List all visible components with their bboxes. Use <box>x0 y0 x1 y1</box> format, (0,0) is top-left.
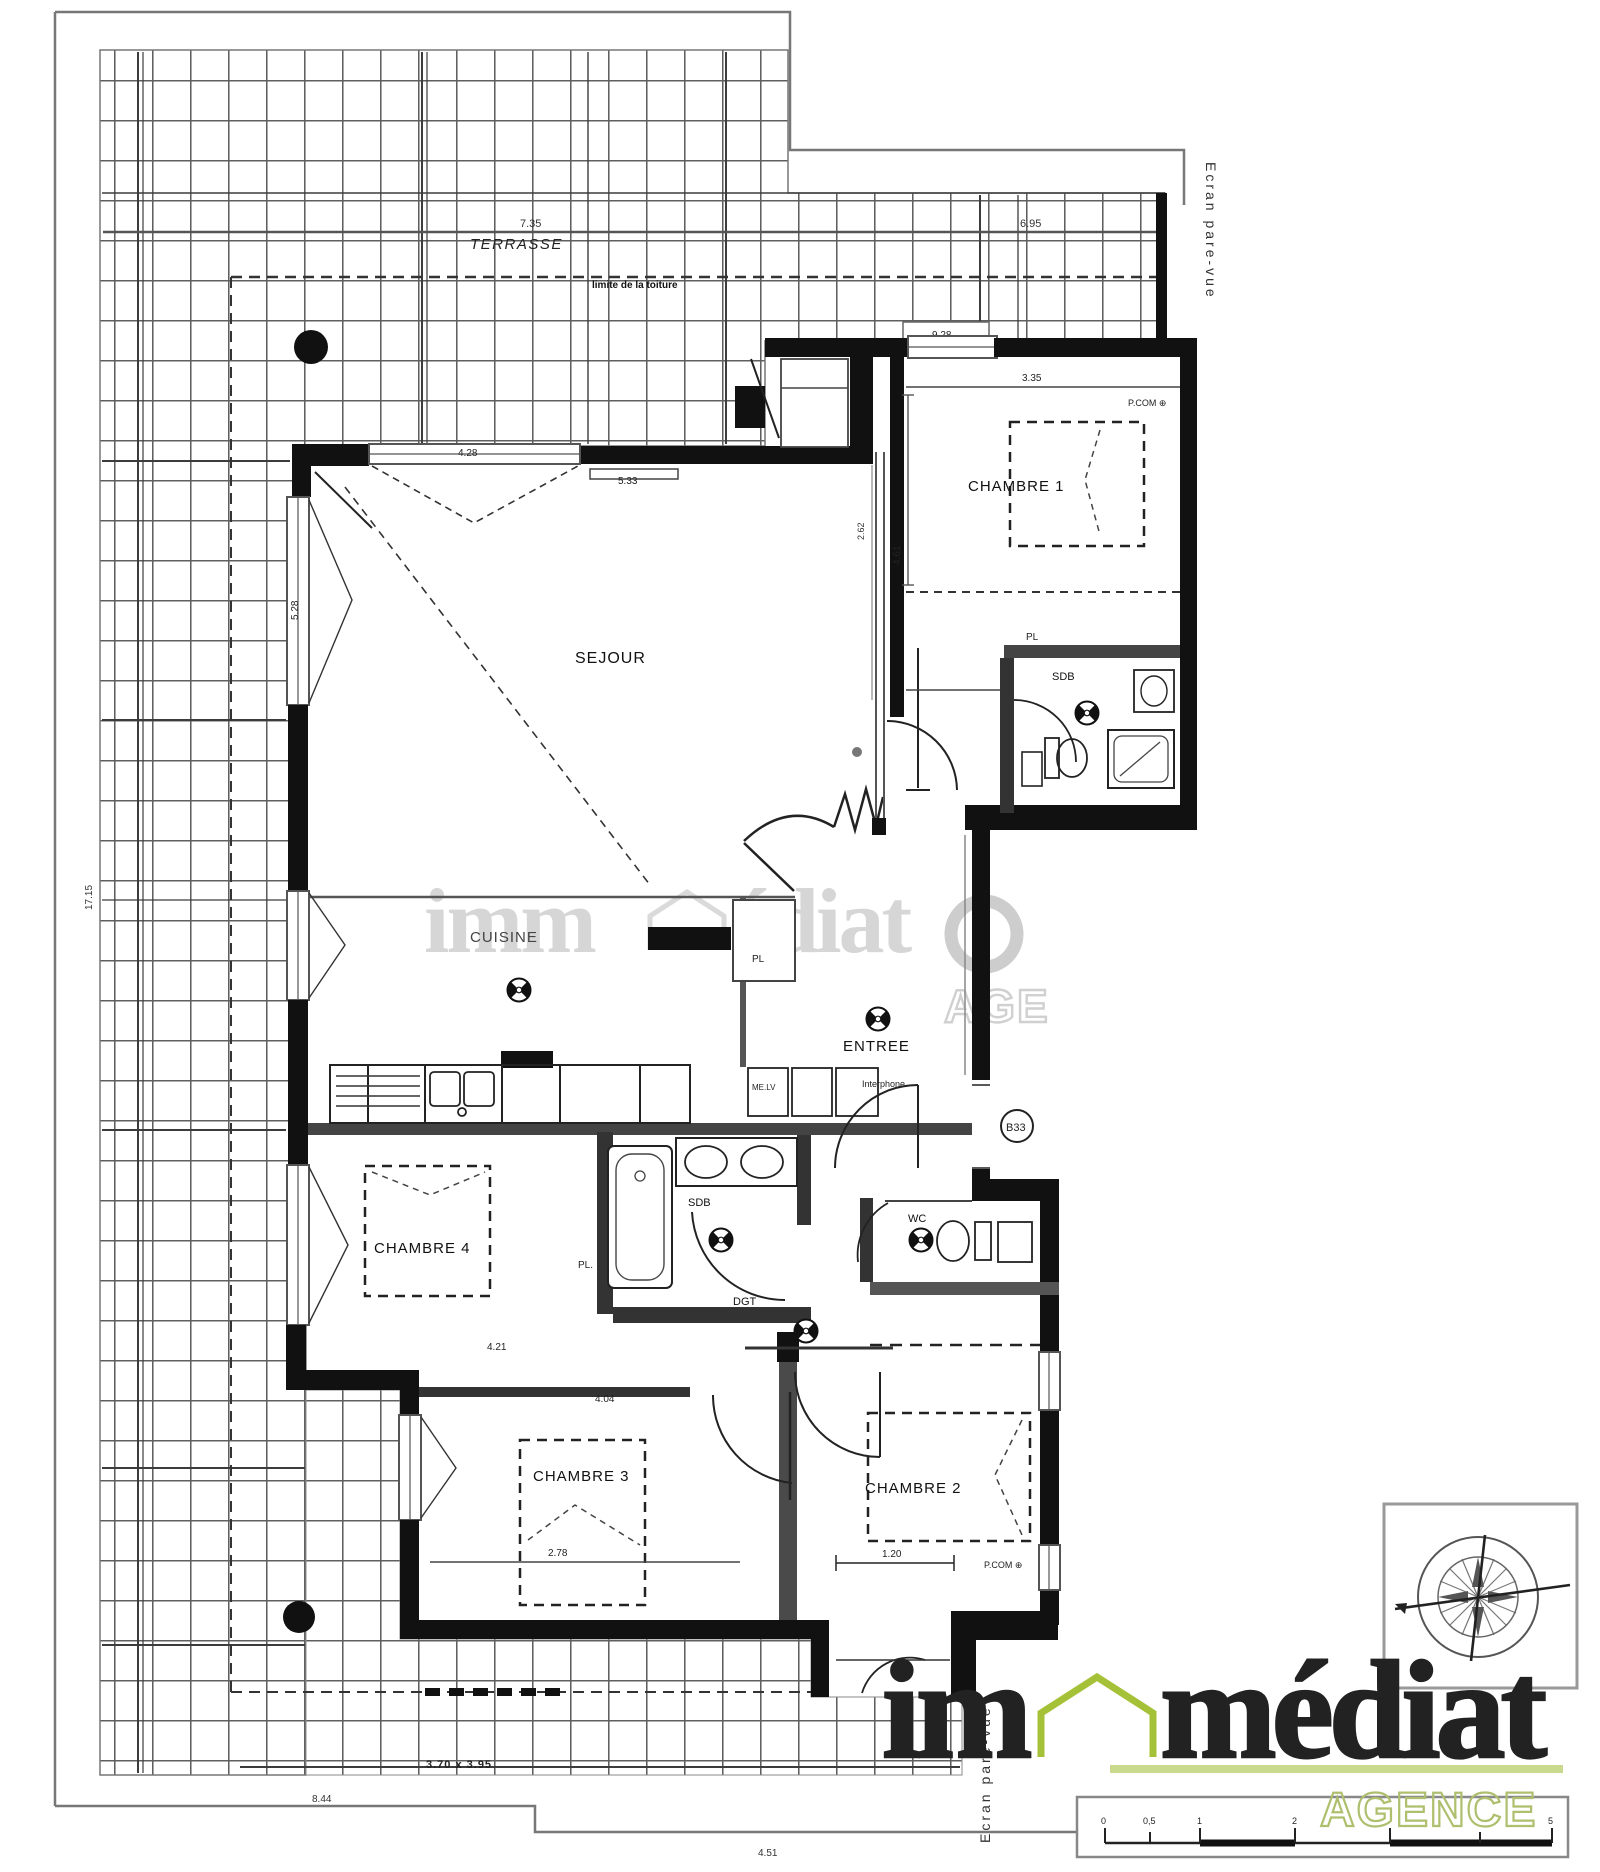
svg-text:2: 2 <box>1292 1816 1297 1826</box>
svg-text:Interphone: Interphone <box>862 1079 905 1089</box>
svg-text:P.COM ⊕: P.COM ⊕ <box>1128 398 1166 408</box>
svg-text:7.35: 7.35 <box>520 218 541 230</box>
svg-text:AGE: AGE <box>944 980 1050 1032</box>
svg-text:ME.LV: ME.LV <box>752 1083 776 1092</box>
svg-text:3.70 x 3.95: 3.70 x 3.95 <box>426 1759 492 1771</box>
svg-text:CUISINE: CUISINE <box>470 929 538 946</box>
svg-text:TERRASSE: TERRASSE <box>470 236 563 253</box>
svg-text:imm: imm <box>424 870 596 972</box>
svg-text:P.COM ⊕: P.COM ⊕ <box>984 1560 1022 1570</box>
svg-text:im: im <box>882 1633 1031 1788</box>
svg-text:SEJOUR: SEJOUR <box>575 650 646 667</box>
svg-text:CHAMBRE 3: CHAMBRE 3 <box>533 1468 630 1485</box>
svg-text:4.51: 4.51 <box>758 1848 778 1859</box>
svg-text:DGT: DGT <box>733 1296 757 1308</box>
svg-text:AGENCE: AGENCE <box>1320 1784 1537 1837</box>
svg-text:4.28: 4.28 <box>458 448 478 459</box>
svg-text:CHAMBRE 2: CHAMBRE 2 <box>865 1480 962 1497</box>
svg-text:CHAMBRE 1: CHAMBRE 1 <box>968 478 1065 495</box>
svg-text:2.78: 2.78 <box>548 1548 568 1559</box>
svg-text:SDB: SDB <box>1052 671 1075 683</box>
svg-text:SDB: SDB <box>688 1197 711 1209</box>
svg-text:8.44: 8.44 <box>312 1794 332 1805</box>
svg-text:17.15: 17.15 <box>84 885 95 910</box>
svg-text:2.62: 2.62 <box>856 522 866 540</box>
svg-text:0,5: 0,5 <box>1143 1816 1156 1826</box>
svg-text:5.33: 5.33 <box>618 476 638 487</box>
svg-text:ENTREE: ENTREE <box>843 1038 910 1055</box>
svg-text:PL.: PL. <box>578 1260 593 1271</box>
svg-text:Ecran pare-vue: Ecran pare-vue <box>1203 162 1219 300</box>
svg-text:4.61: 4.61 <box>892 545 903 565</box>
svg-text:limite de la toiture: limite de la toiture <box>592 280 678 291</box>
svg-text:CHAMBRE 4: CHAMBRE 4 <box>374 1240 471 1257</box>
svg-text:4.04: 4.04 <box>595 1394 615 1405</box>
svg-text:B33: B33 <box>1006 1122 1026 1134</box>
svg-text:5: 5 <box>1548 1816 1553 1826</box>
svg-text:5.28: 5.28 <box>290 600 301 620</box>
svg-text:PL: PL <box>1026 632 1039 643</box>
svg-text:médiat: médiat <box>1160 1633 1547 1788</box>
svg-text:4.21: 4.21 <box>487 1342 507 1353</box>
svg-text:0: 0 <box>1101 1816 1106 1826</box>
svg-text:1.20: 1.20 <box>882 1549 902 1560</box>
svg-text:6.95: 6.95 <box>1020 218 1041 230</box>
svg-text:WC: WC <box>908 1213 926 1225</box>
svg-text:1: 1 <box>1197 1816 1202 1826</box>
svg-text:3.35: 3.35 <box>1022 373 1042 384</box>
svg-text:PL: PL <box>752 954 765 965</box>
